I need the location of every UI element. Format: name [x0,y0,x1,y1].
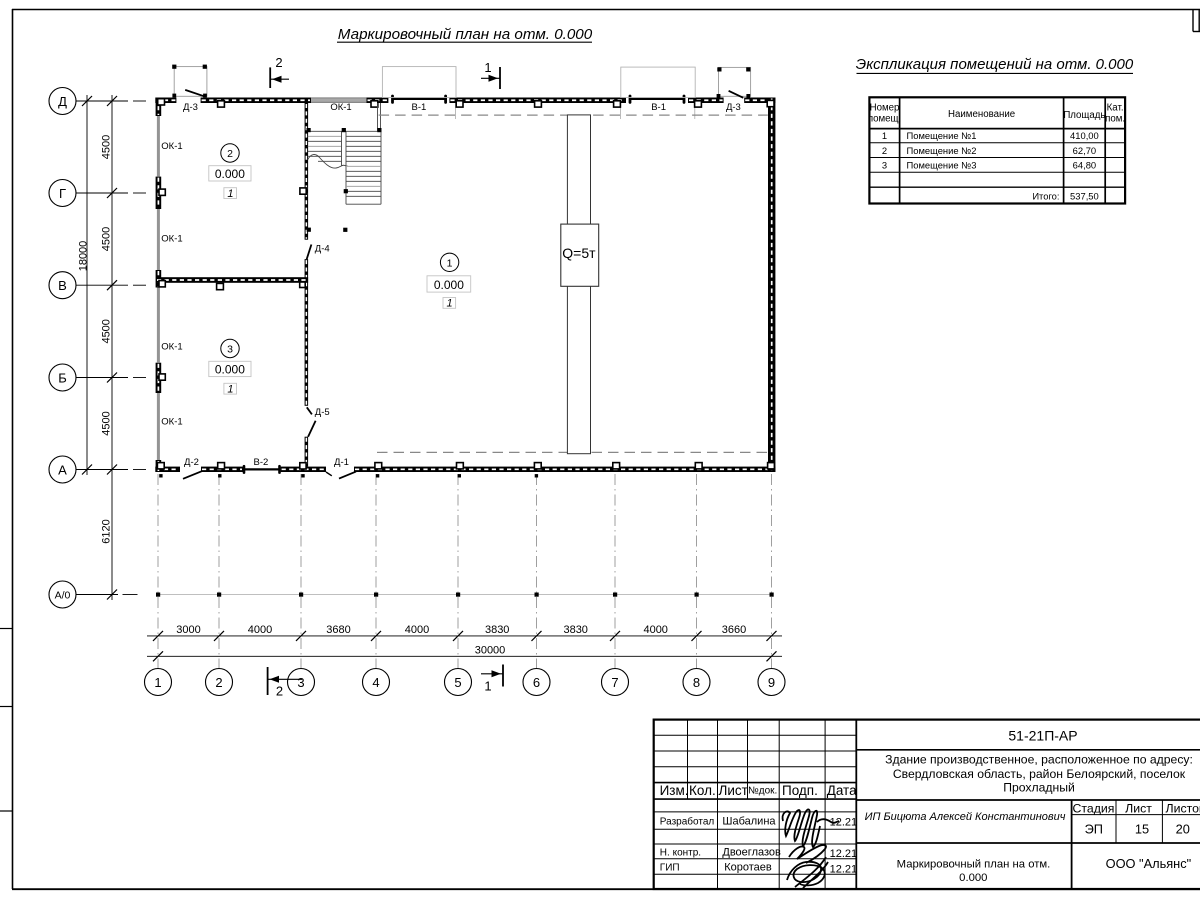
svg-text:ОК-1: ОК-1 [161,234,182,245]
svg-text:Стадия: Стадия [1073,802,1115,816]
svg-text:ОК-1: ОК-1 [161,141,182,152]
svg-text:4500: 4500 [101,319,113,343]
svg-text:Лист: Лист [1125,802,1152,816]
svg-text:20: 20 [1176,821,1190,836]
svg-text:В-1: В-1 [412,102,427,113]
svg-text:Шабалина: Шабалина [722,815,776,827]
svg-text:51-21П-АР: 51-21П-АР [1008,728,1077,744]
svg-text:Дата: Дата [827,783,857,798]
svg-text:3000: 3000 [176,624,200,636]
svg-text:30000: 30000 [475,644,506,656]
svg-text:4: 4 [372,675,379,690]
svg-text:0.000: 0.000 [215,167,245,181]
svg-text:Экспликация помещений на отм.: Экспликация помещений на отм. 0.000 [856,56,1134,73]
svg-text:Изм.: Изм. [660,783,689,798]
svg-text:Площадь: Площадь [1063,110,1105,121]
svg-text:0.000: 0.000 [215,363,245,377]
svg-text:Д: Д [58,94,67,109]
svg-text:1: 1 [227,383,233,395]
svg-text:62,70: 62,70 [1073,145,1096,156]
svg-text:3830: 3830 [485,624,509,636]
svg-text:18000: 18000 [78,241,90,272]
svg-text:Здание производственное, распо: Здание производственное, расположенное п… [885,753,1193,767]
svg-text:Д-3: Д-3 [183,102,198,113]
svg-text:ЭП: ЭП [1085,821,1103,836]
svg-text:4000: 4000 [643,624,667,636]
svg-text:2: 2 [227,148,233,160]
svg-text:В: В [58,278,67,293]
svg-text:Лист: Лист [719,783,748,798]
svg-text:Помещение №1: Помещение №1 [907,130,977,141]
svg-text:Г: Г [59,186,66,201]
svg-text:1: 1 [227,188,233,200]
svg-text:1: 1 [154,675,161,690]
svg-text:Д-4: Д-4 [315,243,330,254]
svg-text:ГИП: ГИП [660,862,680,873]
svg-text:2: 2 [882,145,887,156]
svg-text:1: 1 [447,257,453,269]
svg-text:ИП Бицюта Алексей Константинов: ИП Бицюта Алексей Константинович [865,811,1066,823]
svg-text:4000: 4000 [405,624,429,636]
svg-text:Маркировочный план на отм. 0.0: Маркировочный план на отм. 0.000 [338,26,593,43]
svg-text:410,00: 410,00 [1070,130,1099,141]
svg-text:Коротаев: Коротаев [724,861,772,873]
svg-text:0.000: 0.000 [434,278,464,292]
svg-text:А/0: А/0 [55,590,71,602]
svg-text:Итого:: Итого: [1032,190,1059,201]
svg-text:ОК-1: ОК-1 [161,417,182,428]
svg-text:6120: 6120 [101,519,113,543]
svg-text:7: 7 [611,675,618,690]
svg-text:64,80: 64,80 [1073,160,1096,171]
svg-text:3660: 3660 [722,624,746,636]
svg-text:4500: 4500 [101,135,113,159]
svg-text:Разработал: Разработал [660,815,715,827]
svg-text:Н. контр.: Н. контр. [660,848,701,859]
svg-text:Д-1: Д-1 [334,457,349,468]
svg-text:№док.: №док. [748,785,777,796]
svg-text:Д-3: Д-3 [726,102,741,113]
svg-text:Прохладный: Прохладный [1003,781,1075,795]
svg-text:8: 8 [693,675,700,690]
svg-text:Номер: Номер [870,103,900,114]
svg-text:Маркировочный план на отм.: Маркировочный план на отм. [897,858,1051,870]
svg-text:Подп.: Подп. [782,783,818,798]
svg-text:Кол.: Кол. [689,783,716,798]
svg-text:Д-5: Д-5 [315,407,330,418]
svg-text:А: А [58,462,67,477]
svg-text:2: 2 [275,55,282,70]
svg-text:Q=5т: Q=5т [562,245,596,261]
svg-text:4000: 4000 [248,624,272,636]
svg-text:12.21: 12.21 [830,848,858,860]
svg-text:Д-2: Д-2 [184,457,199,468]
svg-text:Двоеглазов: Двоеглазов [722,847,781,859]
svg-text:9: 9 [768,675,775,690]
svg-text:ОК-1: ОК-1 [330,102,351,113]
svg-text:1: 1 [484,60,491,75]
svg-text:4500: 4500 [101,411,113,435]
svg-text:4500: 4500 [101,227,113,251]
svg-text:1: 1 [484,678,491,693]
svg-text:2: 2 [215,675,222,690]
svg-text:Помещение №3: Помещение №3 [907,160,977,171]
svg-text:15: 15 [1135,821,1149,836]
svg-text:Б: Б [58,370,67,385]
svg-text:пом.: пом. [1105,114,1125,125]
svg-text:Кат.: Кат. [1107,103,1124,114]
svg-text:3830: 3830 [563,624,587,636]
svg-text:ОК-1: ОК-1 [161,342,182,353]
svg-text:12.21: 12.21 [830,863,858,875]
svg-text:5: 5 [454,675,461,690]
svg-text:Помещение №2: Помещение №2 [907,145,977,156]
svg-text:Наименование: Наименование [948,109,1015,120]
svg-text:ООО "Альянс": ООО "Альянс" [1106,856,1192,871]
svg-text:В-1: В-1 [651,102,666,113]
svg-text:Свердловская область, район Бе: Свердловская область, район Белоярский, … [893,767,1186,781]
svg-text:Листов: Листов [1166,802,1200,816]
svg-text:3: 3 [227,344,233,356]
svg-text:1: 1 [882,130,887,141]
svg-text:0.000: 0.000 [959,872,987,884]
svg-text:3680: 3680 [326,624,350,636]
svg-text:537,50: 537,50 [1070,190,1099,201]
svg-text:В-2: В-2 [254,457,269,468]
svg-text:3: 3 [882,160,887,171]
svg-text:1: 1 [446,298,452,310]
svg-text:3: 3 [297,675,304,690]
svg-text:2: 2 [276,684,283,699]
svg-text:6: 6 [533,675,540,690]
svg-text:помещ.: помещ. [868,114,901,125]
